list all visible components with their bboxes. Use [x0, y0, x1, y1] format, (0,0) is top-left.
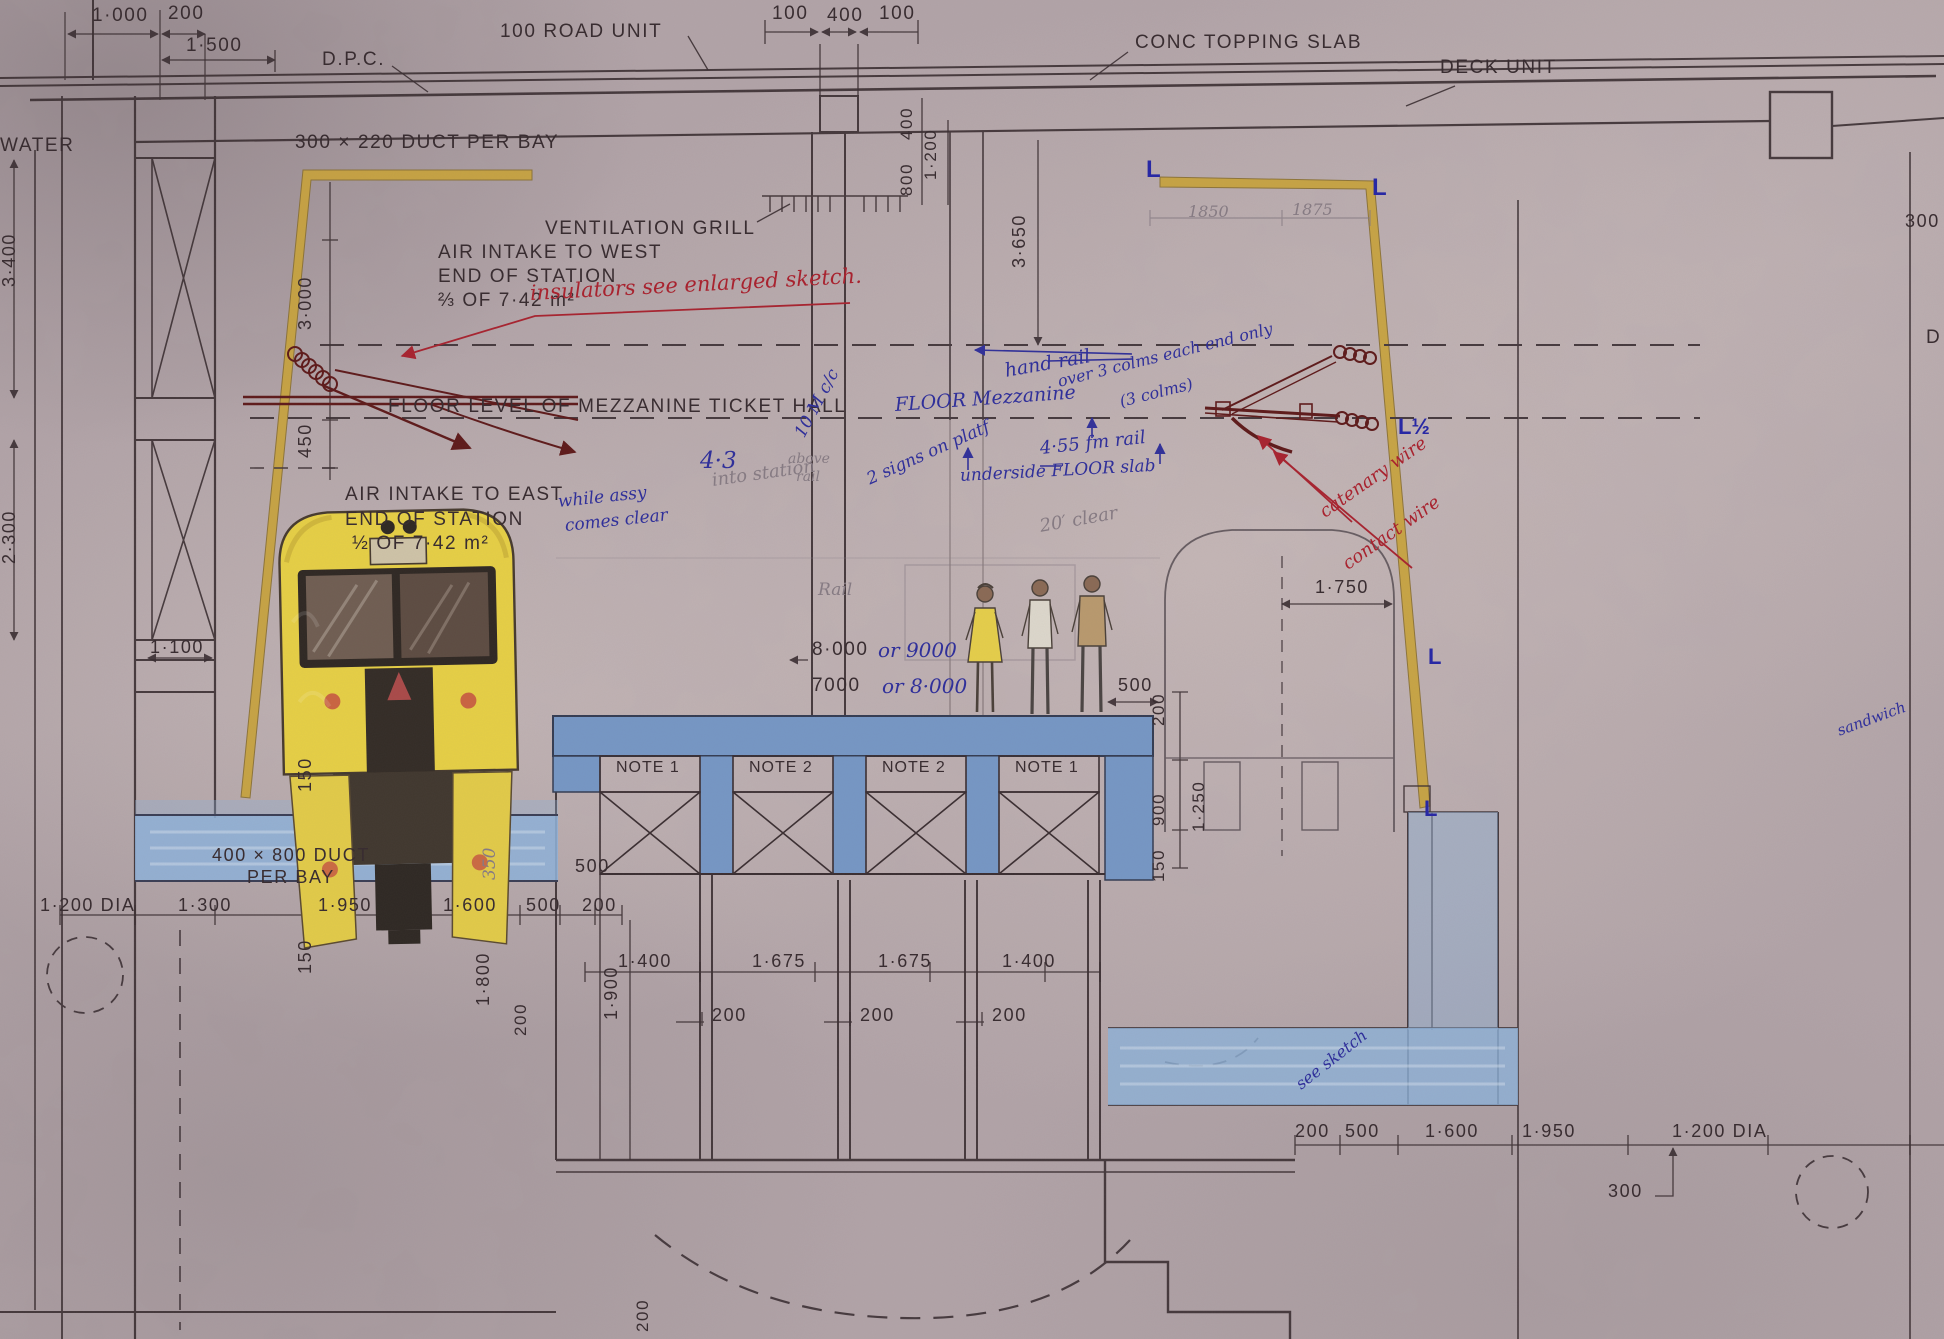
drawing-label: NOTE 1 — [616, 760, 680, 776]
drawing-label: 450 — [296, 423, 314, 458]
drawing-label: contact wire — [1340, 493, 1444, 573]
drawing-label: 200 — [992, 1006, 1027, 1024]
blueprint-canvas: 1·0002001·500D.P.C.100 ROAD UNIT10040010… — [0, 0, 1944, 1339]
drawing-label: see sketch — [1293, 1027, 1370, 1092]
drawing-label: 200 — [168, 4, 205, 23]
drawing-label: 1·400 — [618, 952, 672, 970]
drawing-label: 200 — [1295, 1122, 1330, 1140]
annotation-labels-layer: 1·0002001·500D.P.C.100 ROAD UNIT10040010… — [0, 0, 1944, 1339]
drawing-label: FLOOR LEVEL OF MEZZANINE TICKET HALL — [388, 397, 846, 416]
drawing-label: 200 — [1150, 693, 1167, 726]
drawing-label: FLOOR Mezzanine — [894, 383, 1076, 415]
drawing-label: 100 ROAD UNIT — [500, 22, 662, 41]
drawing-label: 3·650 — [1010, 214, 1028, 268]
drawing-label: ½ OF 7·42 m² — [352, 534, 489, 553]
drawing-label: (3 colms) — [1118, 376, 1194, 410]
drawing-label: 200 — [860, 1006, 895, 1024]
drawing-label: L — [1372, 176, 1387, 200]
drawing-label: 900 — [1150, 793, 1167, 826]
drawing-label: underside FLOOR slab — [960, 458, 1156, 485]
drawing-label: NOTE 1 — [1015, 760, 1079, 776]
drawing-label: NOTE 2 — [749, 760, 813, 776]
drawing-label: 1·500 — [186, 36, 243, 55]
drawing-label: 3·400 — [0, 233, 18, 287]
drawing-label: 1·950 — [318, 896, 372, 914]
drawing-label: or 9000 — [878, 640, 957, 660]
drawing-label: AIR INTAKE TO EAST — [345, 485, 564, 504]
drawing-label: 500 — [1118, 676, 1153, 694]
drawing-label: WATER — [0, 136, 75, 155]
drawing-label: Rail — [818, 582, 852, 599]
drawing-label: 7000 — [812, 676, 861, 695]
drawing-label: 150 — [296, 757, 314, 792]
drawing-label: D.P.C. — [322, 50, 385, 69]
drawing-label: 200 — [582, 896, 617, 914]
drawing-label: 1·300 — [178, 896, 232, 914]
drawing-label: 150 — [296, 939, 314, 974]
drawing-label: 2·300 — [0, 510, 18, 564]
drawing-label: 3·000 — [296, 276, 314, 330]
drawing-label: 1850 — [1188, 204, 1229, 220]
drawing-label: 1·250 — [1190, 781, 1207, 832]
drawing-label: END OF STATION — [345, 510, 524, 529]
drawing-label: 100 — [879, 4, 916, 23]
drawing-label: 350 — [482, 848, 499, 880]
drawing-label: D — [1926, 328, 1941, 347]
drawing-label: 400 — [827, 6, 864, 25]
drawing-label: L — [1146, 158, 1161, 182]
drawing-label: VENTILATION GRILL — [545, 219, 756, 238]
drawing-label: 4·55 fm rail — [1039, 429, 1146, 458]
drawing-label: PER BAY — [247, 868, 335, 886]
drawing-label: 1·750 — [1315, 578, 1369, 596]
drawing-label: 1·950 — [1522, 1122, 1576, 1140]
drawing-label: 400 × 800 DUCT — [212, 846, 370, 864]
drawing-label: sandwich — [1835, 700, 1907, 739]
drawing-label: NOTE 2 — [882, 760, 946, 776]
drawing-label: 200 — [712, 1006, 747, 1024]
drawing-label: 500 — [1345, 1122, 1380, 1140]
drawing-label: DECK UNIT — [1440, 58, 1557, 77]
drawing-label: AIR INTAKE TO WEST — [438, 243, 662, 262]
drawing-label: 1·600 — [443, 896, 497, 914]
drawing-label: CONC TOPPING SLAB — [1135, 33, 1362, 52]
drawing-label: while assy — [557, 485, 647, 511]
drawing-label: 1·675 — [878, 952, 932, 970]
drawing-label: 1·000 — [92, 6, 149, 25]
drawing-label: L — [1424, 798, 1437, 820]
drawing-label: 1·100 — [150, 638, 204, 656]
drawing-label: 150 — [1150, 849, 1167, 882]
drawing-label: 20′ clear — [1038, 504, 1118, 535]
drawing-label: 1·200 — [922, 129, 939, 180]
drawing-label: 200 — [512, 1003, 529, 1036]
drawing-label: 1·900 — [602, 966, 620, 1020]
drawing-label: 1·400 — [1002, 952, 1056, 970]
drawing-label: 300 × 220 DUCT PER BAY — [295, 133, 559, 152]
drawing-label: 200 — [634, 1299, 651, 1332]
drawing-label: 8·000 — [812, 640, 869, 659]
drawing-label: L — [1428, 646, 1441, 668]
drawing-label: 300 — [1905, 212, 1940, 230]
drawing-label: 300 — [1608, 1182, 1643, 1200]
drawing-label: 400 — [898, 107, 915, 140]
drawing-label: comes clear — [564, 507, 669, 535]
drawing-label: 1·200 DIA — [1672, 1122, 1767, 1140]
drawing-label: 1·800 — [474, 952, 492, 1006]
drawing-label: 1·675 — [752, 952, 806, 970]
drawing-label: 100 — [772, 4, 809, 23]
drawing-label: or 8·000 — [882, 676, 967, 696]
drawing-label: 500 — [575, 857, 610, 875]
drawing-label: 1·600 — [1425, 1122, 1479, 1140]
drawing-label: 800 — [898, 163, 915, 196]
drawing-label: 1875 — [1292, 202, 1333, 218]
drawing-label: 1·200 DIA — [40, 896, 135, 914]
drawing-label: 500 — [526, 896, 561, 914]
